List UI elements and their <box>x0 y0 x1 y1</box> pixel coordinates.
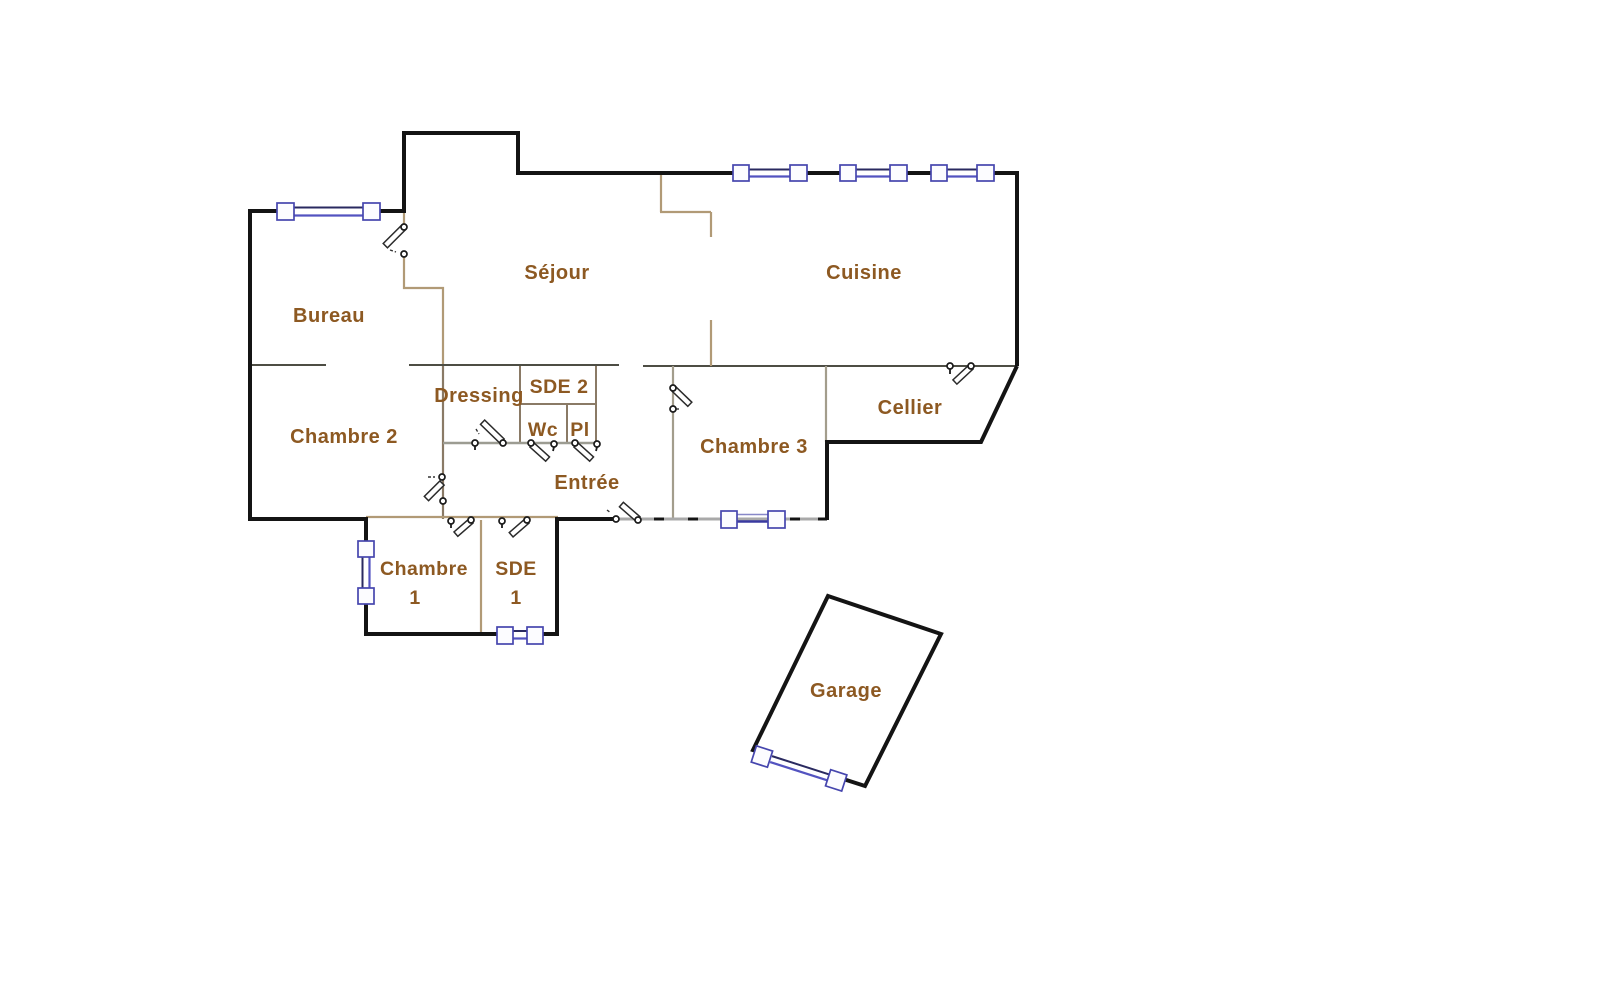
svg-text:Cuisine: Cuisine <box>826 262 902 284</box>
svg-text:Chambre 2: Chambre 2 <box>290 426 398 448</box>
svg-text:Entrée: Entrée <box>554 472 619 494</box>
svg-text:Chambre 3: Chambre 3 <box>700 436 808 458</box>
svg-text:1: 1 <box>409 587 420 609</box>
svg-text:Séjour: Séjour <box>524 262 589 284</box>
svg-text:SDE 2: SDE 2 <box>530 376 589 398</box>
svg-text:Chambre: Chambre <box>380 558 468 580</box>
svg-text:Cellier: Cellier <box>878 397 943 419</box>
svg-text:Pl: Pl <box>570 419 589 441</box>
svg-text:Garage: Garage <box>810 680 882 702</box>
svg-text:Dressing: Dressing <box>434 385 524 407</box>
svg-text:SDE: SDE <box>495 558 537 580</box>
svg-text:1: 1 <box>510 587 521 609</box>
svg-text:Bureau: Bureau <box>293 305 365 327</box>
svg-text:Wc: Wc <box>528 419 558 441</box>
